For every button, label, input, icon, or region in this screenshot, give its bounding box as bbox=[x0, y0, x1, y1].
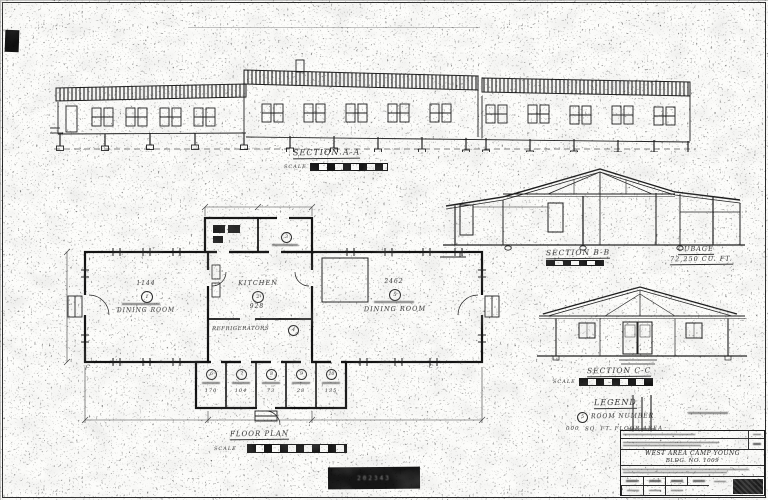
corner-stamp bbox=[733, 479, 763, 494]
dining-left-smudge bbox=[122, 303, 160, 305]
small-room-1-number: 6 bbox=[206, 369, 217, 380]
title-block-project-row: WEST AREA CAMP YOUNG BLDG. NO. 1009 bbox=[621, 450, 764, 466]
dining-right-room-number: 5 bbox=[389, 289, 401, 301]
refrigerators-room-number: 4 bbox=[288, 325, 299, 336]
section-c-scale-word: SCALE bbox=[553, 379, 576, 385]
small-room-5-smudge bbox=[322, 382, 340, 384]
legend-room-number-label: ROOM NUMBER bbox=[591, 413, 654, 421]
title-block-row-1-cell bbox=[748, 431, 764, 438]
title-block-building: BLDG. NO. 1009 bbox=[621, 458, 764, 465]
section-a-title: SECTION A-A bbox=[293, 148, 360, 160]
small-room-3-area: 73 bbox=[261, 388, 281, 394]
small-room-4-number: 9 bbox=[296, 369, 307, 380]
small-room-4-smudge bbox=[292, 382, 310, 384]
section-b-scale-bar bbox=[546, 260, 604, 266]
small-room-4-number-text: 9 bbox=[300, 372, 303, 377]
kitchen-room-number: 2 bbox=[252, 291, 264, 303]
floor-plan-scale-word: SCALE bbox=[214, 446, 237, 452]
small-room-5-area: 135 bbox=[321, 388, 341, 394]
title-block-row-2 bbox=[621, 439, 764, 450]
blueprint-sheet: SECTION A-A SCALE SECTION B-B CUBAGE 72,… bbox=[0, 0, 768, 500]
small-room-2-number: 7 bbox=[236, 369, 247, 380]
top-room-smudge bbox=[272, 244, 298, 246]
small-room-1-smudge bbox=[202, 382, 220, 384]
section-b-title: SECTION B-B bbox=[546, 248, 610, 260]
small-room-2-smudge bbox=[232, 382, 250, 384]
cubage-value: 72,250 CU. FT. bbox=[670, 255, 733, 266]
top-room-number-text: 3 bbox=[285, 235, 288, 240]
dining-left-label: DINING ROOM bbox=[106, 307, 186, 315]
kitchen-label: KITCHEN bbox=[226, 279, 290, 288]
title-block-row-4 bbox=[621, 466, 764, 477]
marker-c-right: C bbox=[429, 364, 434, 370]
dining-left-room-number: 1 bbox=[141, 291, 153, 303]
dining-right-label: DINING ROOM bbox=[353, 305, 437, 314]
floor-plan-title: FLOOR PLAN bbox=[230, 430, 289, 441]
dining-right-smudge bbox=[374, 301, 414, 303]
small-room-2-area: 104 bbox=[231, 388, 251, 394]
legend-room-number-symbol-text: 5 bbox=[581, 415, 584, 420]
center-stamp: 202343 bbox=[328, 467, 420, 490]
small-room-5-number: 10 bbox=[326, 369, 337, 380]
legend-title: LEGEND bbox=[594, 398, 637, 409]
section-a-scale-bar bbox=[310, 163, 388, 171]
dining-right-room-number-text: 5 bbox=[393, 292, 396, 298]
small-room-3-number-text: 8 bbox=[270, 372, 273, 377]
section-c-title: SECTION C-C bbox=[587, 366, 652, 378]
title-block-approvals-row bbox=[621, 477, 764, 495]
small-room-3-smudge bbox=[262, 382, 280, 384]
title-block-row-2-cell bbox=[748, 439, 764, 449]
small-room-5-number-text: 10 bbox=[329, 372, 335, 377]
refrigerators-label: REFRIGERATORS bbox=[212, 326, 269, 333]
refrigerators-room-number-text: 4 bbox=[292, 328, 295, 333]
title-block-row-1-text bbox=[623, 434, 695, 436]
title-block-row-1 bbox=[621, 431, 764, 439]
dining-left-area: 1144 bbox=[130, 280, 162, 287]
small-room-2-number-text: 7 bbox=[240, 372, 243, 377]
title-block-project: WEST AREA CAMP YOUNG bbox=[621, 450, 764, 458]
corner-mark bbox=[5, 30, 20, 52]
small-room-4-area: 28 bbox=[291, 388, 311, 394]
small-room-1-number-text: 6 bbox=[210, 372, 213, 377]
kitchen-area: 928 bbox=[246, 303, 268, 310]
small-room-1-area: 170 bbox=[201, 388, 221, 394]
title-block-row-2-text-b bbox=[623, 445, 701, 447]
marker-c-left: C bbox=[86, 364, 91, 370]
center-stamp-text: 202343 bbox=[357, 474, 391, 481]
title-block-row-4-text-a bbox=[623, 469, 749, 471]
section-a-scale-word: SCALE bbox=[284, 164, 307, 170]
dining-right-area: 2462 bbox=[377, 278, 411, 285]
small-room-3-number: 8 bbox=[266, 369, 277, 380]
title-block-row-4-text-b bbox=[623, 472, 727, 474]
title-block-row-2-text-a bbox=[623, 442, 719, 444]
legend-area-sample: 000 bbox=[566, 426, 580, 432]
legend-room-number-symbol: 5 bbox=[577, 412, 588, 423]
floor-plan-scale-bar bbox=[247, 444, 347, 453]
dining-left-room-number-text: 1 bbox=[145, 294, 148, 300]
top-room-number: 3 bbox=[281, 232, 292, 243]
kitchen-room-number-text: 2 bbox=[256, 294, 259, 300]
title-block: WEST AREA CAMP YOUNG BLDG. NO. 1009 bbox=[620, 430, 765, 496]
section-c-scale-bar bbox=[579, 378, 653, 386]
note-smudge bbox=[688, 412, 728, 414]
cubage-label: CUBAGE bbox=[678, 245, 714, 255]
